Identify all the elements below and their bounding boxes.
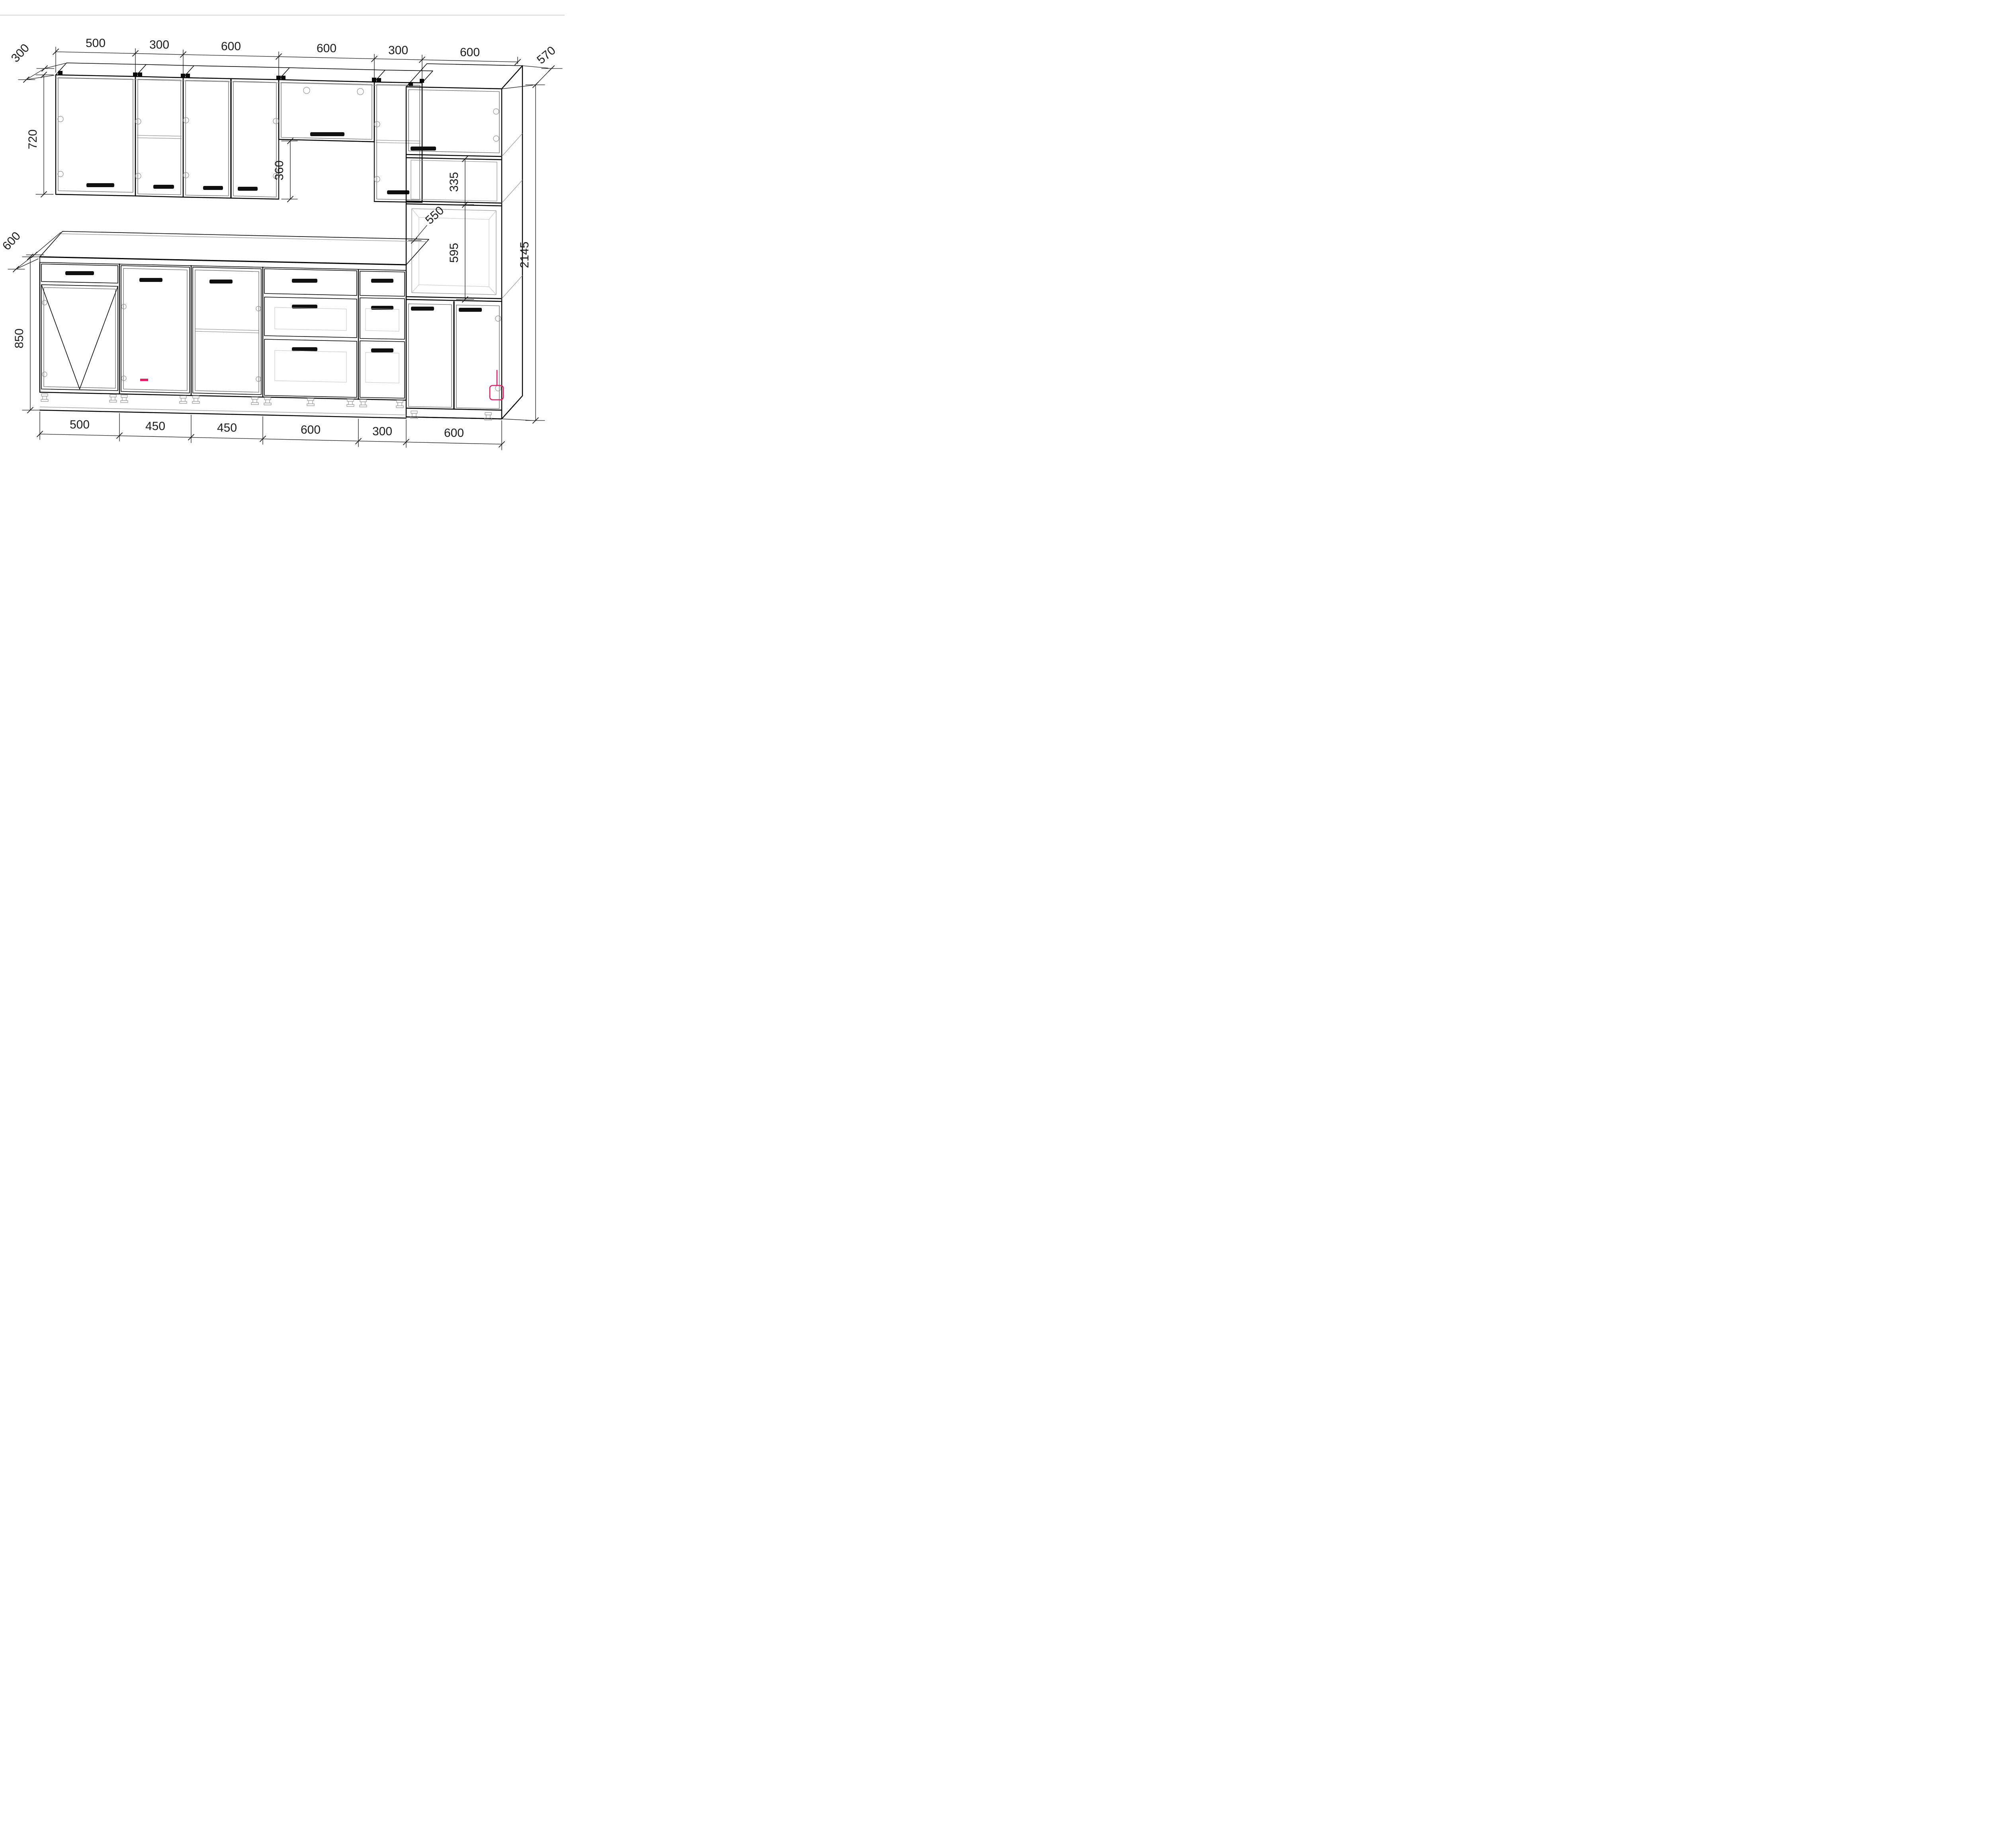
dim-total-height-2145: 2145 xyxy=(503,82,545,423)
dim-top-600b: 600 xyxy=(317,42,336,55)
hinge-icon xyxy=(42,300,47,305)
hinge-icon xyxy=(495,316,501,321)
tall-cabinet-column xyxy=(406,64,522,419)
base-cab-500-sink xyxy=(41,264,118,391)
base-cabinet-row xyxy=(40,262,502,420)
handle-icon xyxy=(459,308,482,312)
handle-icon xyxy=(292,279,317,283)
dim-wall-depth-300: 300 xyxy=(9,41,65,82)
handle-icon xyxy=(411,307,434,311)
wall-cabinet-row xyxy=(56,63,433,202)
hinge-icon xyxy=(42,372,47,377)
handle-icon xyxy=(209,280,233,284)
wall-cab-500 xyxy=(56,75,135,196)
hinge-icon xyxy=(183,117,189,123)
hinge-icon xyxy=(183,172,189,178)
kitchen-drawing-canvas: 500 300 600 600 300 600 xyxy=(0,0,565,462)
dim-base-height-850: 850 xyxy=(13,254,39,413)
wall-cab-300b xyxy=(374,82,422,202)
dim-bottom-450b: 450 xyxy=(217,421,237,434)
dim-top-300b: 300 xyxy=(388,44,408,57)
handle-icon xyxy=(153,185,174,189)
dim-top-600c: 600 xyxy=(460,46,480,59)
hinge-icon xyxy=(374,176,380,182)
hinge-icon xyxy=(493,136,499,141)
hinge-icon xyxy=(58,116,63,122)
hinge-icon xyxy=(495,385,501,391)
handle-icon xyxy=(139,278,162,282)
panel-marker-v xyxy=(41,285,118,389)
wall-cab-300 xyxy=(135,76,183,197)
dim-tall-depth: 570 xyxy=(534,44,558,66)
handle-icon xyxy=(371,348,393,352)
countertop xyxy=(40,231,429,270)
dim-shelf-335: 335 xyxy=(448,156,474,207)
dim-top-500: 500 xyxy=(86,37,106,50)
hinge-icon xyxy=(121,304,126,309)
handle-icon xyxy=(65,271,94,275)
hinge-icon xyxy=(121,376,126,381)
handle-icon xyxy=(203,186,223,190)
base-cab-300-drawers xyxy=(360,271,405,398)
dim-bottom-600a: 600 xyxy=(301,423,321,436)
dim-wall-height: 720 xyxy=(26,129,39,149)
dim-counter-depth: 600 xyxy=(0,229,23,253)
accent-plinth-clip xyxy=(140,379,148,381)
hinge-icon xyxy=(135,173,141,179)
dim-top-chain: 500 300 600 600 300 600 xyxy=(53,37,520,80)
handle-icon xyxy=(310,132,344,136)
hinge-icon xyxy=(493,109,499,114)
handle-icon xyxy=(371,279,393,283)
base-cab-600-drawers xyxy=(264,269,357,397)
dim-bottom-300: 300 xyxy=(372,425,392,438)
dim-niche-height: 595 xyxy=(448,243,461,263)
dim-lift-gap: 360 xyxy=(273,160,286,180)
dim-bottom-500: 500 xyxy=(70,418,90,431)
base-cab-450a xyxy=(121,266,190,393)
dim-niche-width: 550 xyxy=(423,204,446,227)
dim-niche-height-595: 595 xyxy=(448,205,474,302)
dim-bottom-450a: 450 xyxy=(145,420,165,433)
handle-icon xyxy=(86,183,114,187)
dim-wall-depth: 300 xyxy=(9,41,32,65)
handle-icon xyxy=(292,347,317,351)
wall-cab-600-double xyxy=(183,78,279,199)
dim-top-300: 300 xyxy=(149,38,169,51)
hinge-icon xyxy=(374,121,380,127)
dim-niche-width-550: 550 xyxy=(409,204,446,243)
dim-shelf-section: 335 xyxy=(448,172,461,192)
hinge-icon xyxy=(135,119,141,124)
drawing-sheet: 500 300 600 600 300 600 xyxy=(0,0,565,462)
dim-total-height: 2145 xyxy=(518,242,531,268)
dim-base-height: 850 xyxy=(13,329,26,348)
dim-tall-depth-570: 570 xyxy=(503,44,562,89)
handle-icon xyxy=(411,147,436,151)
dim-bottom-600b: 600 xyxy=(444,426,464,440)
hinge-icon xyxy=(58,171,63,177)
handle-icon xyxy=(238,187,258,191)
dim-wall-height-720: 720 xyxy=(26,72,53,197)
dim-top-600a: 600 xyxy=(221,40,241,53)
base-cab-450b xyxy=(193,267,261,395)
hinge-icon xyxy=(256,377,261,381)
hinge-icon xyxy=(256,306,261,311)
hinge-icon xyxy=(273,118,279,124)
hinge-icon xyxy=(357,88,364,95)
hinge-icon xyxy=(303,87,310,94)
